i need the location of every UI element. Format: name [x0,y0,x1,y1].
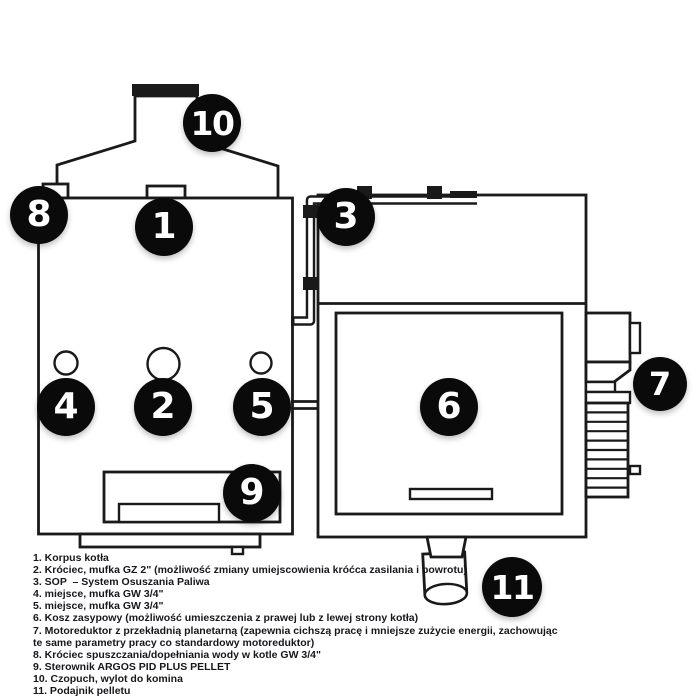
top-center-notch [147,186,185,198]
fitting-center [148,348,180,380]
callout-7: 7 [633,357,687,411]
chimney [57,84,278,198]
callout-4: 4 [37,378,95,436]
gearmotor-collar-small [586,382,615,392]
gearmotor-collar-wide [586,392,630,403]
boiler-diagram: 1 2 3 4 5 6 7 8 9 10 11 1. Korpus kotła … [0,0,700,700]
fitting-right [251,353,272,374]
callout-1: 1 [135,198,193,256]
legend-item-4: 4. miejsce, mufka GW 3/4" [33,588,558,600]
chimney-cap [132,84,199,96]
hopper-unit [318,195,586,537]
callout-5: 5 [233,378,291,436]
legend-item-11: 11. Podajnik pelletu [33,685,558,697]
legend-item-5: 5. miejsce, mufka GW 3/4" [33,600,558,612]
legend-item-2: 2. Króciec, mufka GZ 2" (możliwość zmian… [33,564,558,576]
gearmotor-boss [630,323,640,353]
gearmotor [586,313,640,497]
callout-6: 6 [420,378,478,436]
hopper-slot [410,489,492,499]
chimney-outline [57,96,278,198]
legend-item-10: 10. Czopuch, wylot do komina [33,673,558,685]
pipe-end-fitting [450,191,477,198]
legend: 1. Korpus kotła 2. Króciec, mufka GZ 2" … [33,552,558,697]
fitting-left [55,352,78,375]
legend-item-3: 3. SOP – System Osuszania Paliwa [33,576,558,588]
legend-item-6: 6. Kosz zasypowy (możliwość umieszczenia… [33,612,558,624]
gearmotor-housing [586,313,630,362]
base-plinth [80,534,260,547]
gearmotor-bevel-block [586,362,630,382]
legend-item-7: 7. Motoreduktor z przekładnią planetarną… [33,625,558,637]
feed-connector-tube [291,402,319,409]
callout-10: 10 [183,94,241,152]
legend-item-1: 1. Korpus kotła [33,552,558,564]
callout-9: 9 [223,464,281,522]
pipe-clamp-1 [303,205,317,218]
legend-item-7-continued: te same parametry pracy co standardowy m… [33,637,558,649]
callout-3: 3 [317,188,375,246]
motor-terminal-nub [630,466,640,474]
callout-2: 2 [134,378,192,436]
legend-item-9: 9. Sterownik ARGOS PID PLUS PELLET [33,661,558,673]
controller-display [119,504,219,522]
callout-8: 8 [10,186,68,244]
pipe-clamp-2 [303,277,317,290]
pipe-clamp-4 [427,186,442,199]
legend-item-8: 8. Króciec spuszczania/dopełniania wody … [33,649,558,661]
